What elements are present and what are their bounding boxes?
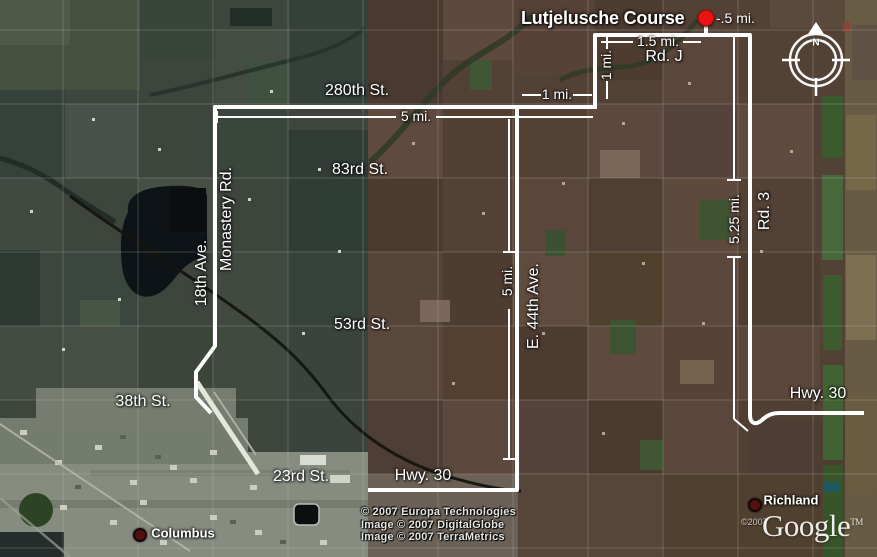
measure-5-mi-vertical: 5 mi. <box>499 266 515 296</box>
course-location-marker <box>698 10 715 27</box>
label-53rd-st: 53rd St. <box>334 316 390 334</box>
place-columbus-label: Columbus <box>151 526 215 541</box>
map-canvas: 280th St.83rd St.53rd St.38th St.23rd St… <box>0 0 877 557</box>
label-38th-st: 38th St. <box>115 393 170 411</box>
google-logo: GoogleTM <box>762 508 863 544</box>
label-rd-j: Rd. J <box>645 48 682 66</box>
label-23rd-st: 23rd St. <box>273 468 329 486</box>
attribution-line-3: Image © 2007 TerraMetrics <box>361 531 516 544</box>
measure-1-5-mi: 1.5 mi. <box>637 33 679 49</box>
course-distance-label: -.5 mi. <box>716 10 755 26</box>
measure-1-mi-vertical: 1 mi. <box>598 50 614 80</box>
label-18th-ave: 18th Ave. <box>193 240 211 306</box>
attribution-line-1: © 2007 Europa Technologies <box>361 506 516 519</box>
compass-north-label: N <box>812 38 819 49</box>
google-logo-text: Google <box>762 508 850 543</box>
imagery-attribution: © 2007 Europa Technologies Image © 2007 … <box>361 506 516 544</box>
google-tm: TM <box>850 517 863 527</box>
label-280th-st: 280th St. <box>325 82 389 100</box>
attribution-line-2: Image © 2007 DigitalGlobe <box>361 519 516 532</box>
label-83rd-st: 83rd St. <box>332 161 388 179</box>
measure-5-mi-horizontal: 5 mi. <box>401 108 431 124</box>
label-e-44th-ave: E. 44th Ave. <box>525 263 543 349</box>
measure-1-mi-horizontal: 1 mi. <box>542 86 572 102</box>
place-richland-label: Richland <box>764 493 819 508</box>
label-monastery-rd: Monastery Rd. <box>218 167 236 271</box>
place-columbus-dot <box>133 528 147 542</box>
place-richland-dot <box>748 498 762 512</box>
measure-5-25-mi: 5.25 mi. <box>726 194 742 244</box>
label-rd-3: Rd. 3 <box>756 192 774 230</box>
label-hwy-30-south: Hwy. 30 <box>395 467 452 485</box>
course-title: Lutjelusche Course <box>521 8 684 29</box>
label-hwy-30-east: Hwy. 30 <box>790 385 847 403</box>
